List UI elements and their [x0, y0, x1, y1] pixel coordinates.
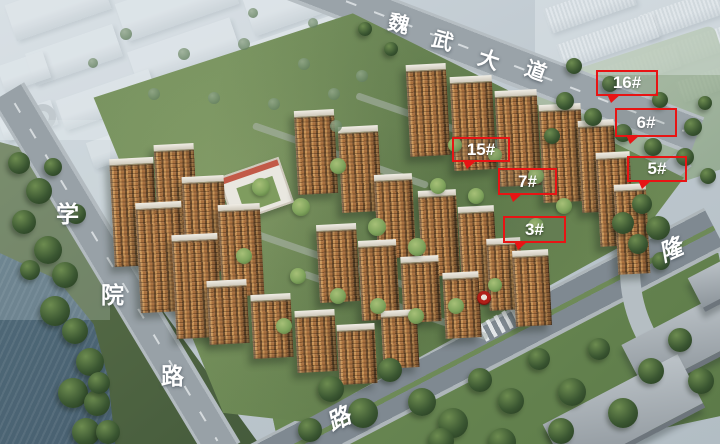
tower-facade	[337, 330, 378, 385]
apartment-tower	[294, 309, 337, 373]
tree-icon	[268, 98, 280, 110]
tree-icon	[588, 338, 610, 360]
tree-icon	[12, 210, 36, 234]
site-plan-rendering: 魏武大道学院路隆路 16#6#5#15#7#3#	[0, 0, 720, 444]
tree-icon	[148, 88, 160, 100]
tree-icon	[584, 108, 602, 126]
tree-icon	[52, 262, 78, 288]
tree-icon	[528, 348, 550, 370]
tree-icon	[632, 194, 652, 214]
bush-icon	[468, 188, 484, 204]
tree-icon	[248, 8, 258, 18]
street-name-char: 路	[161, 365, 184, 388]
tree-icon	[700, 168, 716, 184]
building-label-callout: 3#	[503, 216, 566, 243]
tree-icon	[612, 212, 634, 234]
bush-icon	[448, 298, 464, 314]
tree-icon	[298, 418, 322, 442]
tree-icon	[408, 388, 436, 416]
tree-icon	[668, 328, 692, 352]
tower-facade	[295, 316, 338, 373]
tree-icon	[208, 92, 220, 104]
apartment-tower	[206, 279, 249, 345]
tree-icon	[638, 358, 664, 384]
tree-icon	[238, 38, 250, 50]
tree-icon	[384, 42, 398, 56]
bush-icon	[290, 268, 306, 284]
bush-icon	[252, 178, 270, 196]
bush-icon	[488, 278, 502, 292]
building-label-callout: 5#	[627, 156, 687, 182]
tree-icon	[378, 358, 402, 382]
tree-icon	[644, 138, 662, 156]
tree-icon	[62, 318, 88, 344]
tree-icon	[308, 18, 318, 28]
tree-icon	[330, 120, 342, 132]
tree-icon	[298, 58, 310, 70]
bush-icon	[292, 198, 310, 216]
bush-icon	[330, 158, 346, 174]
tree-icon	[468, 368, 492, 392]
tree-icon	[544, 128, 560, 144]
entrance-marker-icon	[477, 291, 491, 305]
tower-facade	[207, 286, 250, 345]
tree-icon	[88, 372, 110, 394]
tree-icon	[698, 96, 712, 110]
bush-icon	[430, 178, 446, 194]
building-label-callout: 6#	[615, 108, 677, 137]
bush-icon	[368, 218, 386, 236]
bush-icon	[408, 238, 426, 256]
bush-icon	[370, 298, 386, 314]
tree-icon	[556, 92, 574, 110]
tree-icon	[120, 28, 132, 40]
street-name-char: 院	[101, 284, 124, 307]
building-label-callout: 16#	[596, 70, 658, 96]
bush-icon	[408, 308, 424, 324]
bush-icon	[276, 318, 292, 334]
tree-icon	[558, 378, 586, 406]
apartment-tower	[406, 63, 451, 157]
building-label-callout: 15#	[452, 137, 510, 162]
tower-facade	[512, 256, 552, 327]
tree-icon	[20, 260, 40, 280]
bush-icon	[330, 288, 346, 304]
tree-icon	[88, 58, 98, 68]
tree-icon	[358, 22, 372, 36]
tree-icon	[8, 152, 30, 174]
bush-icon	[236, 248, 252, 264]
tree-icon	[356, 70, 368, 82]
tree-icon	[34, 236, 62, 264]
tree-icon	[498, 388, 524, 414]
tree-icon	[688, 368, 714, 394]
tree-icon	[628, 234, 648, 254]
tree-icon	[684, 118, 702, 136]
apartment-tower	[512, 249, 552, 327]
tree-icon	[96, 420, 120, 444]
bush-icon	[556, 198, 572, 214]
tree-icon	[608, 398, 638, 428]
street-name-char: 学	[56, 203, 79, 226]
building-label-callout: 7#	[498, 168, 557, 195]
tree-icon	[44, 158, 62, 176]
tree-icon	[548, 418, 574, 444]
tower-facade	[406, 70, 450, 157]
tree-icon	[566, 58, 582, 74]
tree-icon	[178, 48, 190, 60]
tree-icon	[26, 178, 52, 204]
tree-icon	[328, 88, 340, 100]
tree-icon	[318, 376, 344, 402]
apartment-tower	[336, 323, 377, 385]
